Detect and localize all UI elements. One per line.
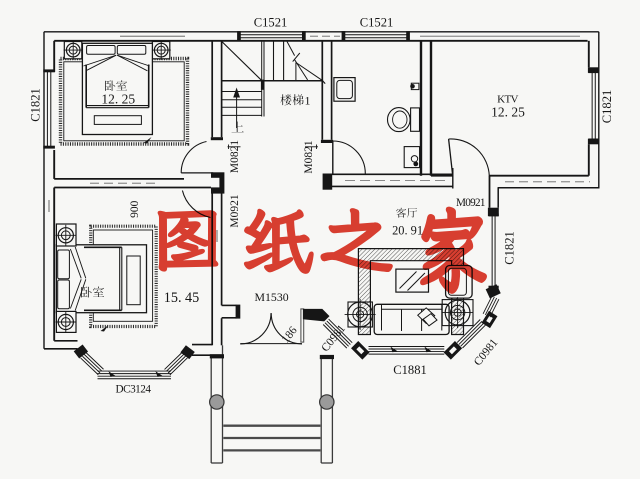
- svg-text:M0921: M0921: [229, 194, 241, 227]
- svg-text:C1881: C1881: [393, 363, 427, 377]
- svg-text:12. 25: 12. 25: [101, 92, 135, 107]
- svg-text:M0921: M0921: [456, 197, 485, 209]
- svg-text:1: 1: [305, 93, 311, 107]
- svg-text:C1821: C1821: [600, 90, 614, 124]
- svg-text:M0821: M0821: [229, 140, 241, 173]
- svg-text:KTV: KTV: [497, 94, 518, 106]
- svg-text:20. 91: 20. 91: [392, 223, 423, 237]
- svg-text:C1821: C1821: [29, 88, 43, 122]
- svg-text:900: 900: [129, 200, 141, 218]
- svg-text:DC3124: DC3124: [116, 383, 152, 395]
- svg-text:15. 45: 15. 45: [164, 290, 199, 306]
- svg-text:M1530: M1530: [255, 290, 289, 304]
- svg-text:12. 25: 12. 25: [491, 104, 525, 119]
- svg-text:C1821: C1821: [503, 231, 517, 265]
- svg-text:M0821: M0821: [303, 140, 315, 173]
- svg-text:C1521: C1521: [360, 16, 394, 30]
- svg-text:C1521: C1521: [254, 16, 288, 30]
